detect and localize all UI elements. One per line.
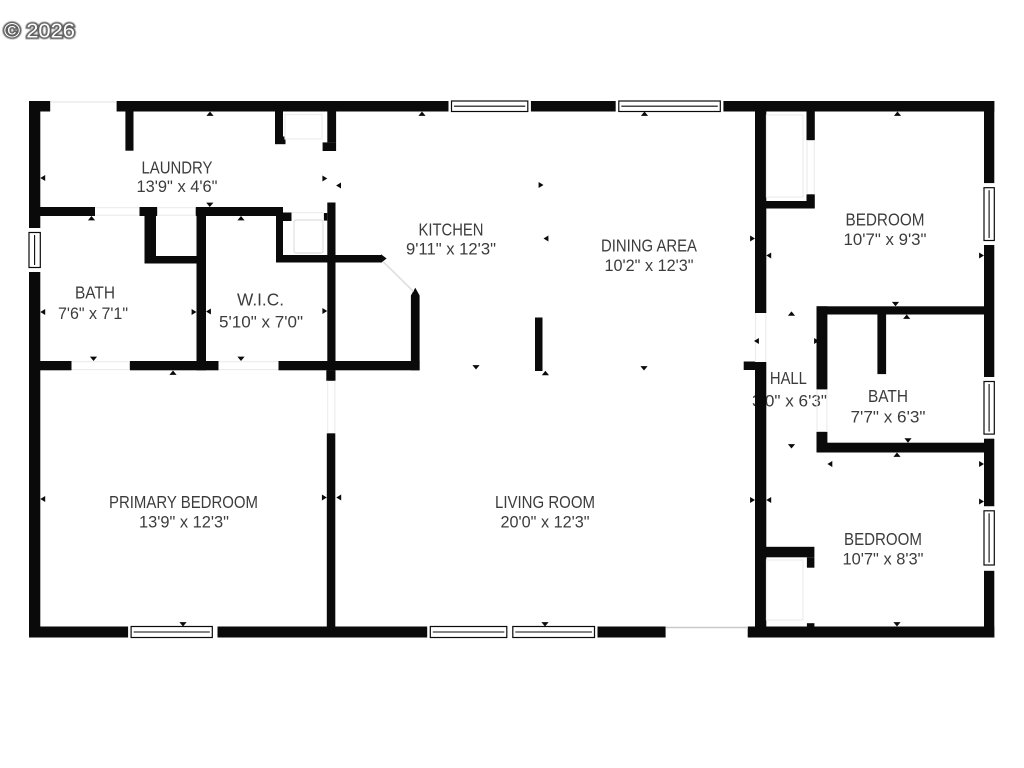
svg-text:13'9" x 12'3": 13'9" x 12'3" bbox=[139, 513, 229, 532]
svg-text:BEDROOM: BEDROOM bbox=[846, 210, 925, 230]
svg-text:13'9" x 4'6": 13'9" x 4'6" bbox=[137, 177, 218, 196]
svg-text:LIVING ROOM: LIVING ROOM bbox=[495, 492, 595, 512]
svg-text:PRIMARY BEDROOM: PRIMARY BEDROOM bbox=[109, 492, 258, 512]
svg-text:W.I.C.: W.I.C. bbox=[237, 290, 284, 310]
svg-text:HALL: HALL bbox=[770, 368, 807, 388]
svg-text:BATH: BATH bbox=[868, 386, 908, 406]
svg-text:BATH: BATH bbox=[75, 283, 115, 303]
svg-text:LAUNDRY: LAUNDRY bbox=[142, 158, 213, 178]
svg-text:BEDROOM: BEDROOM bbox=[844, 529, 922, 549]
svg-text:DINING AREA: DINING AREA bbox=[601, 236, 697, 256]
svg-text:10'7" x 8'3": 10'7" x 8'3" bbox=[843, 550, 924, 569]
svg-text:10'7" x 9'3": 10'7" x 9'3" bbox=[844, 230, 927, 249]
svg-text:5'10" x 7'0": 5'10" x 7'0" bbox=[219, 313, 303, 332]
svg-text:7'6" x 7'1": 7'6" x 7'1" bbox=[58, 304, 128, 323]
svg-text:20'0" x 12'3": 20'0" x 12'3" bbox=[501, 513, 590, 532]
svg-text:KITCHEN: KITCHEN bbox=[419, 220, 484, 240]
svg-text:© 2026: © 2026 bbox=[4, 21, 75, 43]
svg-text:7'7" x 6'3": 7'7" x 6'3" bbox=[851, 408, 926, 427]
svg-text:10'2" x 12'3": 10'2" x 12'3" bbox=[605, 256, 694, 275]
svg-text:9'11" x 12'3": 9'11" x 12'3" bbox=[406, 240, 496, 259]
